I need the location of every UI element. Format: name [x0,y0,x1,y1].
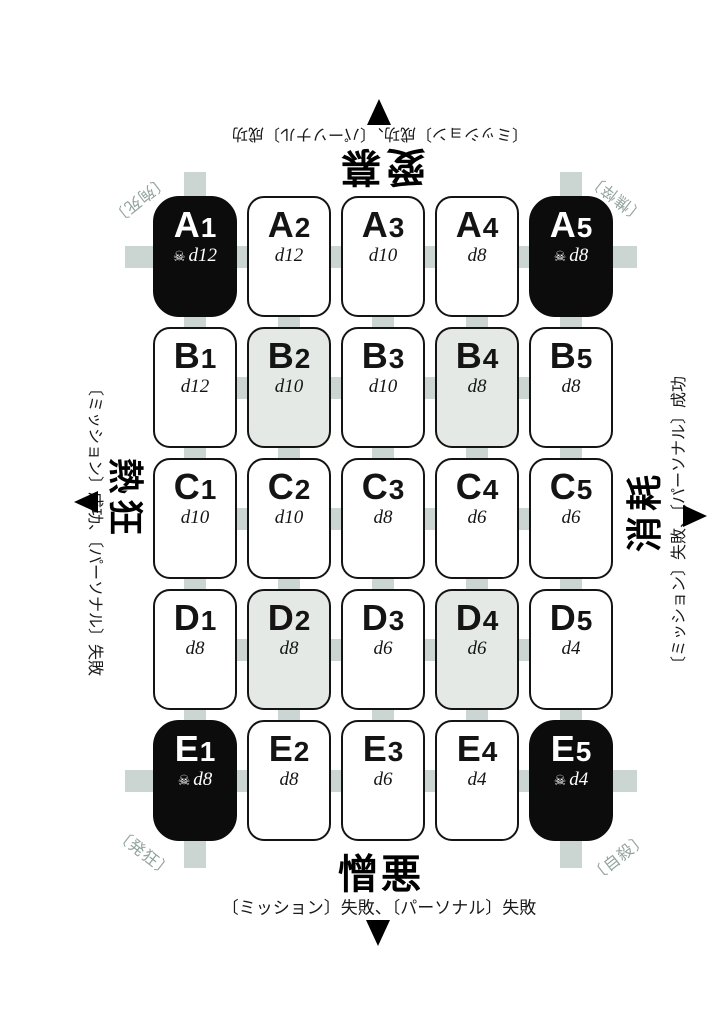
cell-id-label: D3 [362,600,405,636]
skull-icon: ☠ [178,774,191,789]
bottom-axis-word: 憎悪 [338,842,424,900]
top-axis-word: 愛慕 [336,141,426,199]
right-axis-word: 消耗 [616,470,668,552]
skull-icon: ☠ [554,774,567,789]
grid-cell-A5: A5☠d8 [529,196,613,317]
cell-die-value: d10 [369,246,398,267]
cell-die-value: d8 [280,639,299,660]
grid-cell-E1: E1☠d8 [153,720,237,841]
cell-die-value: d10 [369,377,398,398]
grid-cell-D1: D1d8 [153,589,237,710]
skull-icon: ☠ [554,250,567,265]
cell-die-value: d4 [468,770,487,791]
cell-die-value: d12 [181,377,210,398]
cell-die-value: d10 [275,508,304,529]
cell-die-value: d4 [562,639,581,660]
cell-die-value: d8 [562,377,581,398]
cell-id-label: D2 [268,600,311,636]
grid-cell-B3: B3d10 [341,327,425,448]
grid-cell-A4: A4d8 [435,196,519,317]
grid-cell-B2: B2d10 [247,327,331,448]
grid-cell-A3: A3d10 [341,196,425,317]
cell-id-label: E1 [175,731,216,767]
cell-id-label: A2 [268,207,311,243]
grid-cell-E5: E5☠d4 [529,720,613,841]
cell-die-value: d6 [468,508,487,529]
cell-id-label: C2 [268,469,311,505]
cell-die-value: d8 [374,508,393,529]
cell-die-value: d6 [374,639,393,660]
cell-die-value: ☠d8 [178,770,213,791]
cell-id-label: C3 [362,469,405,505]
grid-cell-D5: D5d4 [529,589,613,710]
cell-die-value: d10 [275,377,304,398]
cell-die-value: d6 [468,639,487,660]
cell-die-value: d8 [186,639,205,660]
left-axis-word: 熱狂 [102,458,154,540]
grid-cell-A1: A1☠d12 [153,196,237,317]
cell-die-value: d10 [181,508,210,529]
cell-id-label: D1 [174,600,217,636]
grid-cell-C4: C4d6 [435,458,519,579]
cell-id-label: B1 [174,338,217,374]
bottom-direction-arrow-icon [366,920,390,946]
cell-die-value: d8 [468,246,487,267]
emotion-madness-chart-page: A1☠d12A2d12A3d10A4d8A5☠d8B1d12B2d10B3d10… [0,0,721,1024]
grid-cell-A2: A2d12 [247,196,331,317]
left-direction-arrow-icon [74,491,98,513]
cell-id-label: E4 [457,731,498,767]
cell-id-label: E3 [363,731,404,767]
cell-id-label: A3 [362,207,405,243]
cell-id-label: E5 [551,731,592,767]
grid-cell-E2: E2d8 [247,720,331,841]
skull-icon: ☠ [173,250,186,265]
grid-cell-C2: C2d10 [247,458,331,579]
cell-die-value: ☠d12 [173,246,217,267]
cell-id-label: E2 [269,731,310,767]
cell-id-label: C1 [174,469,217,505]
grid-cell-C3: C3d8 [341,458,425,579]
grid-cell-E4: E4d4 [435,720,519,841]
grid-cell-B1: B1d12 [153,327,237,448]
bottom-axis-instruction: 〔ミッション〕失敗、〔パーソナル〕失敗 [222,894,537,919]
right-direction-arrow-icon [683,505,707,527]
grid-cell-D2: D2d8 [247,589,331,710]
cell-id-label: D5 [550,600,593,636]
grid-cell-C5: C5d6 [529,458,613,579]
grid-cell-B4: B4d8 [435,327,519,448]
cell-id-label: D4 [456,600,499,636]
grid-cell-D4: D4d6 [435,589,519,710]
cell-die-value: d6 [562,508,581,529]
cell-id-label: A5 [550,207,593,243]
cell-id-label: A4 [456,207,499,243]
cell-id-label: B2 [268,338,311,374]
cell-die-value: d8 [468,377,487,398]
cell-die-value: d12 [275,246,304,267]
cell-die-value: ☠d8 [554,246,589,267]
cell-id-label: C5 [550,469,593,505]
cell-id-label: B4 [456,338,499,374]
left-axis-instruction: 〔ミッション〕成功、〔パーソナル〕失敗 [85,380,109,676]
grid-cell-B5: B5d8 [529,327,613,448]
cell-die-value: d8 [280,770,299,791]
cell-id-label: A1 [174,207,217,243]
grid-cell-D3: D3d6 [341,589,425,710]
cell-die-value: ☠d4 [554,770,589,791]
top-direction-arrow-icon [367,99,391,125]
grid-cell-E3: E3d6 [341,720,425,841]
cell-id-label: C4 [456,469,499,505]
cell-id-label: B5 [550,338,593,374]
grid-cell-C1: C1d10 [153,458,237,579]
cell-die-value: d6 [374,770,393,791]
cell-id-label: B3 [362,338,405,374]
